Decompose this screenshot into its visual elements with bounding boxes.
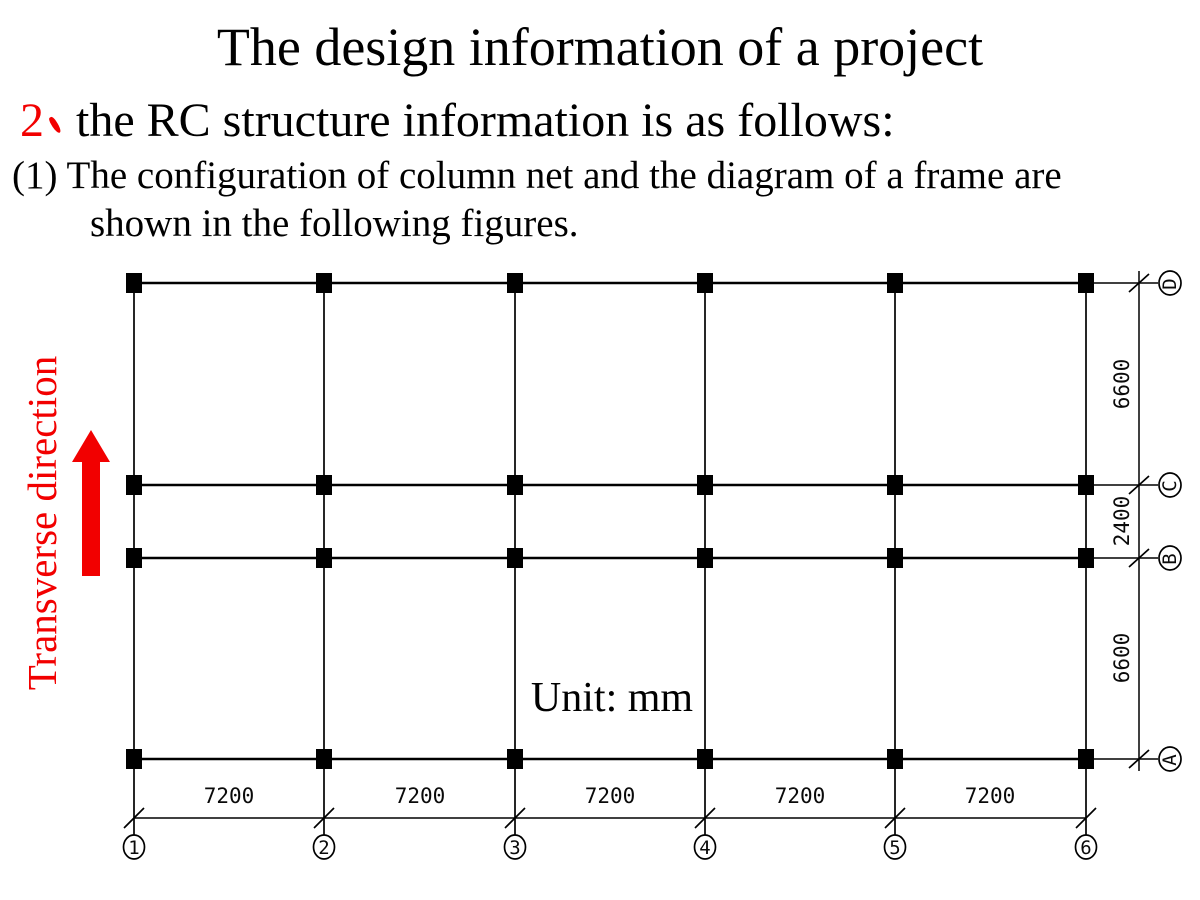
up-arrow [72,430,110,576]
column-square [126,475,142,495]
column-square [887,273,903,293]
column-square [316,273,332,293]
dim-value: 7200 [775,784,826,808]
axis-bubble-label: 2 [318,837,329,859]
right-axis-bubbles: D C B A [1159,271,1181,771]
transverse-direction-label: Transverse direction [19,356,65,690]
column-square [507,749,523,769]
column-square [1078,273,1094,293]
column-square [126,749,142,769]
dim-value: 6600 [1110,633,1134,684]
column-square [697,749,713,769]
dim-value: 6600 [1110,359,1134,410]
axis-bubble-label: 4 [699,837,710,859]
column-square [697,273,713,293]
slide: The design information of a project 2the… [0,0,1200,900]
column-square [316,475,332,495]
column-square [507,475,523,495]
axis-bubble-label: A [1159,754,1181,766]
column-square [126,548,142,568]
column-square [126,273,142,293]
axis-bubble-label: 3 [509,837,520,859]
column-square [1078,475,1094,495]
axis-bubble-label: 5 [889,837,900,859]
axis-bubble-label: C [1159,480,1181,491]
column-square [887,749,903,769]
column-net-diagram: 7200 7200 7200 7200 7200 6600 2400 6600 … [0,0,1200,900]
bottom-axis-bubbles: 1 2 3 4 5 6 [124,835,1097,859]
axis-bubble-label: D [1159,278,1181,289]
axis-bubble-label: 6 [1080,837,1091,859]
axis-bubble-label: 1 [128,837,139,859]
column-square [316,548,332,568]
column-square [697,548,713,568]
dim-value: 7200 [395,784,446,808]
right-dim-labels: 6600 2400 6600 [1110,359,1134,684]
bottom-dim-labels: 7200 7200 7200 7200 7200 [204,784,1016,808]
column-square [1078,749,1094,769]
column-square [1078,548,1094,568]
column-square [887,548,903,568]
column-square [887,475,903,495]
column-square [507,273,523,293]
axis-bubble-label: B [1159,553,1181,564]
dim-value: 7200 [204,784,255,808]
unit-label: Unit: mm [531,675,694,721]
column-square [697,475,713,495]
dim-value: 7200 [965,784,1016,808]
column-square [507,548,523,568]
dim-value: 2400 [1110,496,1134,547]
column-square [316,749,332,769]
dim-value: 7200 [585,784,636,808]
